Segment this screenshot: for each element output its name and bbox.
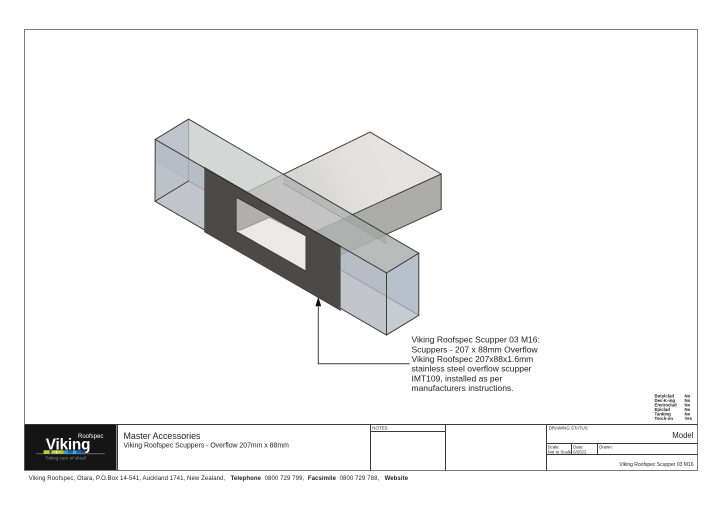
svg-text:Viking Roofspec 207x88x1.6mm: Viking Roofspec 207x88x1.6mm: [412, 354, 534, 364]
svg-text:Master Accessories: Master Accessories: [124, 431, 202, 441]
svg-text:Taking care of detail: Taking care of detail: [45, 456, 87, 461]
svg-text:Viking Roofspec, Otara, P.O.Bo: Viking Roofspec, Otara, P.O.Box 14-541, …: [29, 476, 409, 482]
svg-text:IMT109, installed as per: IMT109, installed as per: [412, 373, 503, 383]
svg-text:Drawn:: Drawn:: [599, 444, 613, 449]
svg-text:manufacturers instructions.: manufacturers instructions.: [412, 383, 514, 393]
svg-text:Torch-on: Torch-on: [655, 416, 674, 421]
svg-text:Scuppers - 207 x 88mm Overflow: Scuppers - 207 x 88mm Overflow: [412, 344, 539, 354]
svg-text:Yes: Yes: [685, 416, 693, 421]
svg-text:Not to Scale: Not to Scale: [548, 449, 572, 454]
svg-text:Viking Roofspec Scupper 03 M16: Viking Roofspec Scupper 03 M16:: [412, 335, 540, 345]
svg-text:Viking Roofspec Scuppers - Ove: Viking Roofspec Scuppers - Overflow 207m…: [124, 442, 290, 449]
svg-text:stainless steel overflow scupp: stainless steel overflow scupper: [412, 364, 532, 374]
svg-text:Viking Roofspec Scupper 03 M16: Viking Roofspec Scupper 03 M16: [619, 462, 693, 468]
svg-text:DRAWING STATUS: DRAWING STATUS: [549, 426, 588, 431]
svg-text:6/2022: 6/2022: [573, 449, 587, 454]
svg-text:Model: Model: [672, 431, 694, 440]
svg-text:NOTES:: NOTES:: [372, 426, 388, 431]
